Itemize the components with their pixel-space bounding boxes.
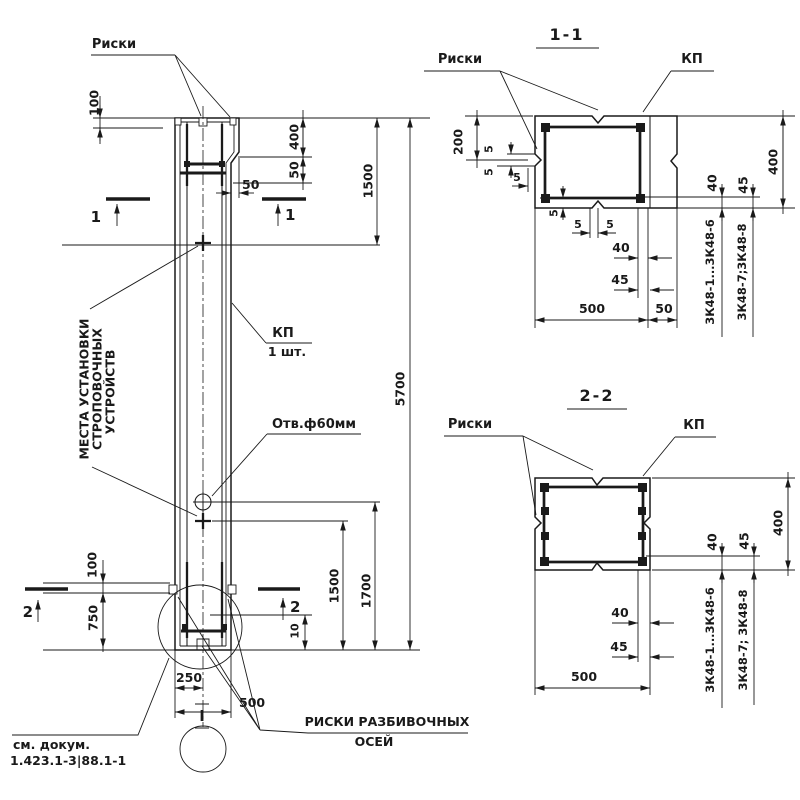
dim-lower-1700: 1700 [359, 573, 374, 608]
dim-upper-1500: 1500 [361, 163, 376, 198]
detail-mark: I [199, 707, 205, 725]
rebar-mid [638, 507, 646, 515]
rebar-thick-ends [187, 124, 222, 638]
dim-40-bottom-s11: 40 [612, 240, 630, 255]
dim-40-right: 40 [705, 174, 720, 192]
dim-50-s11: 50 [655, 301, 673, 316]
riski-label: Риски [92, 37, 136, 52]
dim-40-right-s22: 40 [705, 533, 720, 551]
riska-mark [228, 585, 236, 594]
dim-console-400: 400 [287, 124, 302, 150]
kp-qty: 1 шт. [268, 344, 306, 359]
dim-console-50h: 50 [242, 177, 260, 192]
riska-mark [230, 118, 236, 125]
dim-45-bottom-s11: 45 [611, 272, 628, 287]
cut1-label-left: 1 [91, 208, 101, 226]
cut2-label-left: 2 [23, 603, 33, 621]
dim-40-bottom-s22: 40 [611, 605, 629, 620]
dim-total-5700: 5700 [393, 371, 408, 406]
stirrup [545, 127, 640, 198]
cut1-label-right: 1 [285, 206, 295, 224]
dim-200: 200 [451, 129, 466, 155]
rebar-mid [541, 507, 549, 515]
rebar-corner [541, 123, 550, 132]
axes-note-line2: ОСЕЙ [355, 734, 394, 749]
drawing-canvas: 100 400 50 50 1500 5700 1500 1700 10 100… [0, 0, 800, 800]
section-1-1-title: 1-1 [550, 25, 585, 44]
kp-label-s11: КП [681, 52, 703, 67]
bar-anchor [221, 624, 227, 630]
column-outline [175, 118, 239, 650]
rebar-corner [541, 194, 550, 203]
bar-mark-1-s11: 3К48-1...3К48-6 [703, 219, 717, 324]
dim-axis-100: 100 [85, 552, 100, 578]
bar-mark-2-s11: 3К48-7;3К48-8 [735, 224, 749, 321]
dim-400-s11: 400 [766, 149, 781, 175]
dim-500-s11: 500 [579, 301, 605, 316]
section-outline [535, 478, 650, 570]
dim-console-50v: 50 [287, 161, 302, 179]
axes-note-line1: РИСКИ РАЗБИВОЧНЫХ [305, 714, 470, 729]
kp-label-s22: КП [683, 418, 705, 433]
bar-mark-2-s22: 3К48-7; 3К48-8 [736, 590, 750, 691]
dim-half-250: 250 [176, 670, 202, 685]
dim-top-100: 100 [87, 90, 102, 116]
riski-leaders-s22 [444, 436, 593, 515]
ext-5-bottom [540, 198, 598, 238]
ext-200 [465, 116, 533, 160]
riska-mark [175, 118, 181, 125]
dim-lower-1500: 1500 [327, 568, 342, 603]
section-cut-marks: 1 1 2 2 [23, 199, 306, 622]
dim-45-bottom-s22: 45 [610, 639, 627, 654]
doc-note-line1: см. докум. [13, 737, 90, 752]
cut2-label-right: 2 [290, 598, 300, 616]
strop-note-line3: УСТРОЙСТВ [103, 350, 118, 435]
rebar-corner [638, 483, 647, 492]
dim-bottom-10: 10 [289, 623, 302, 639]
rebar-corner [540, 483, 549, 492]
rebar-corner [636, 194, 645, 203]
dim-5: 5 [606, 218, 614, 231]
dim-5: 5 [513, 171, 521, 184]
dim-5: 5 [548, 209, 561, 217]
doc-leader [12, 658, 169, 735]
section-outline [535, 116, 677, 208]
kp-leader-s22 [643, 437, 716, 476]
dim-5: 5 [483, 145, 496, 153]
kp-leader-s11 [643, 71, 714, 112]
rebar-corner [638, 557, 647, 566]
detail-bubble [180, 726, 226, 772]
rebar-mid [638, 532, 646, 540]
dim-5: 5 [483, 168, 496, 176]
doc-note-line2: 1.423.1-3|88.1-1 [10, 753, 126, 768]
rebar-lines [187, 122, 222, 646]
riski-label-s11: Риски [438, 52, 482, 67]
dim-400-s22: 400 [771, 510, 786, 536]
bar-anchor [219, 161, 225, 167]
bar-anchor [184, 161, 190, 167]
ext-lines-top [93, 118, 430, 128]
hole-label: Отв.ф60мм [272, 417, 356, 432]
rebar-corner [540, 557, 549, 566]
stirrup [544, 487, 643, 562]
riski-leaders [91, 55, 230, 117]
dim-45-right-s22: 45 [737, 532, 752, 549]
kp-label: КП [272, 326, 294, 341]
dim-axis-750: 750 [86, 605, 101, 631]
dim-5: 5 [574, 218, 582, 231]
dim-500-s22: 500 [571, 669, 597, 684]
section-2-2-title: 2-2 [580, 386, 615, 405]
hole-leader [212, 434, 361, 496]
section-1-1: 1-1 Риски КП 200 5 5 5 5 5 5 [424, 25, 795, 337]
rebar-mid [541, 532, 549, 540]
riski-label-s22: Риски [448, 417, 492, 432]
dim-45-right: 45 [736, 176, 751, 193]
cut-bars [25, 199, 306, 589]
detail-circle [158, 585, 242, 669]
bar-mark-1-s22: 3К48-1...3К48-6 [703, 587, 717, 692]
bar-anchor [182, 624, 188, 630]
rebar-corner [636, 123, 645, 132]
section-2-2: 2-2 Риски КП 40 45 400 3К48-1...3К48-6 3… [444, 386, 795, 708]
